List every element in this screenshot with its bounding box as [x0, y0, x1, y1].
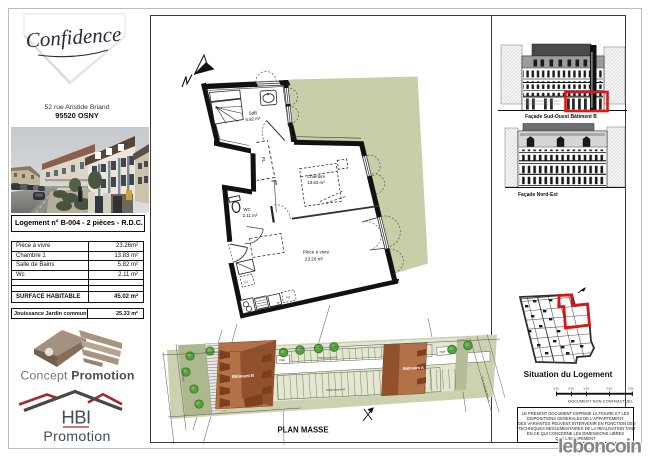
svg-text:23.26 m²: 23.26 m² [305, 257, 324, 262]
svg-text:Pièce à vivre: Pièce à vivre [303, 250, 330, 255]
svg-text:95520 OSNY: 95520 OSNY [55, 111, 99, 120]
svg-text:52 rue Aristide Briand: 52 rue Aristide Briand [45, 104, 110, 111]
svg-text:PMR: PMR [439, 350, 445, 354]
svg-text:PMR: PMR [279, 358, 285, 362]
svg-text:HBI: HBI [61, 407, 90, 428]
svg-text:3.00: 3.00 [606, 387, 612, 391]
svg-text:Façade Sud-Ouest Bâtiment B: Façade Sud-Ouest Bâtiment B [525, 114, 597, 120]
svg-text:0.50: 0.50 [568, 387, 574, 391]
svg-text:Promotion: Promotion [43, 429, 110, 445]
svg-text:1.00: 1.00 [583, 387, 589, 391]
svg-text:0.00: 0.00 [553, 387, 559, 391]
svg-text:DOCUMENT NON CONTRACTUEL: DOCUMENT NON CONTRACTUEL [568, 399, 634, 404]
svg-text:5.82 m²: 5.82 m² [245, 116, 261, 122]
svg-text:Chambre: Chambre [307, 174, 326, 179]
svg-text:Situation du Logement: Situation du Logement [524, 370, 613, 379]
svg-text:SdB: SdB [249, 110, 258, 116]
svg-text:13.83 m²: 13.83 m² [307, 180, 325, 185]
svg-text:Concept Promotion: Concept Promotion [20, 369, 134, 383]
svg-text:leboncoin: leboncoin [558, 436, 641, 458]
svg-text:5.00: 5.00 [628, 387, 634, 391]
svg-text:PLAN MASSE: PLAN MASSE [277, 426, 328, 435]
svg-text:2.11 m²: 2.11 m² [243, 213, 258, 218]
svg-text:WC: WC [243, 207, 250, 212]
svg-text:Façade Nord-Est: Façade Nord-Est [518, 192, 558, 198]
svg-text:PL: PL [260, 156, 266, 163]
